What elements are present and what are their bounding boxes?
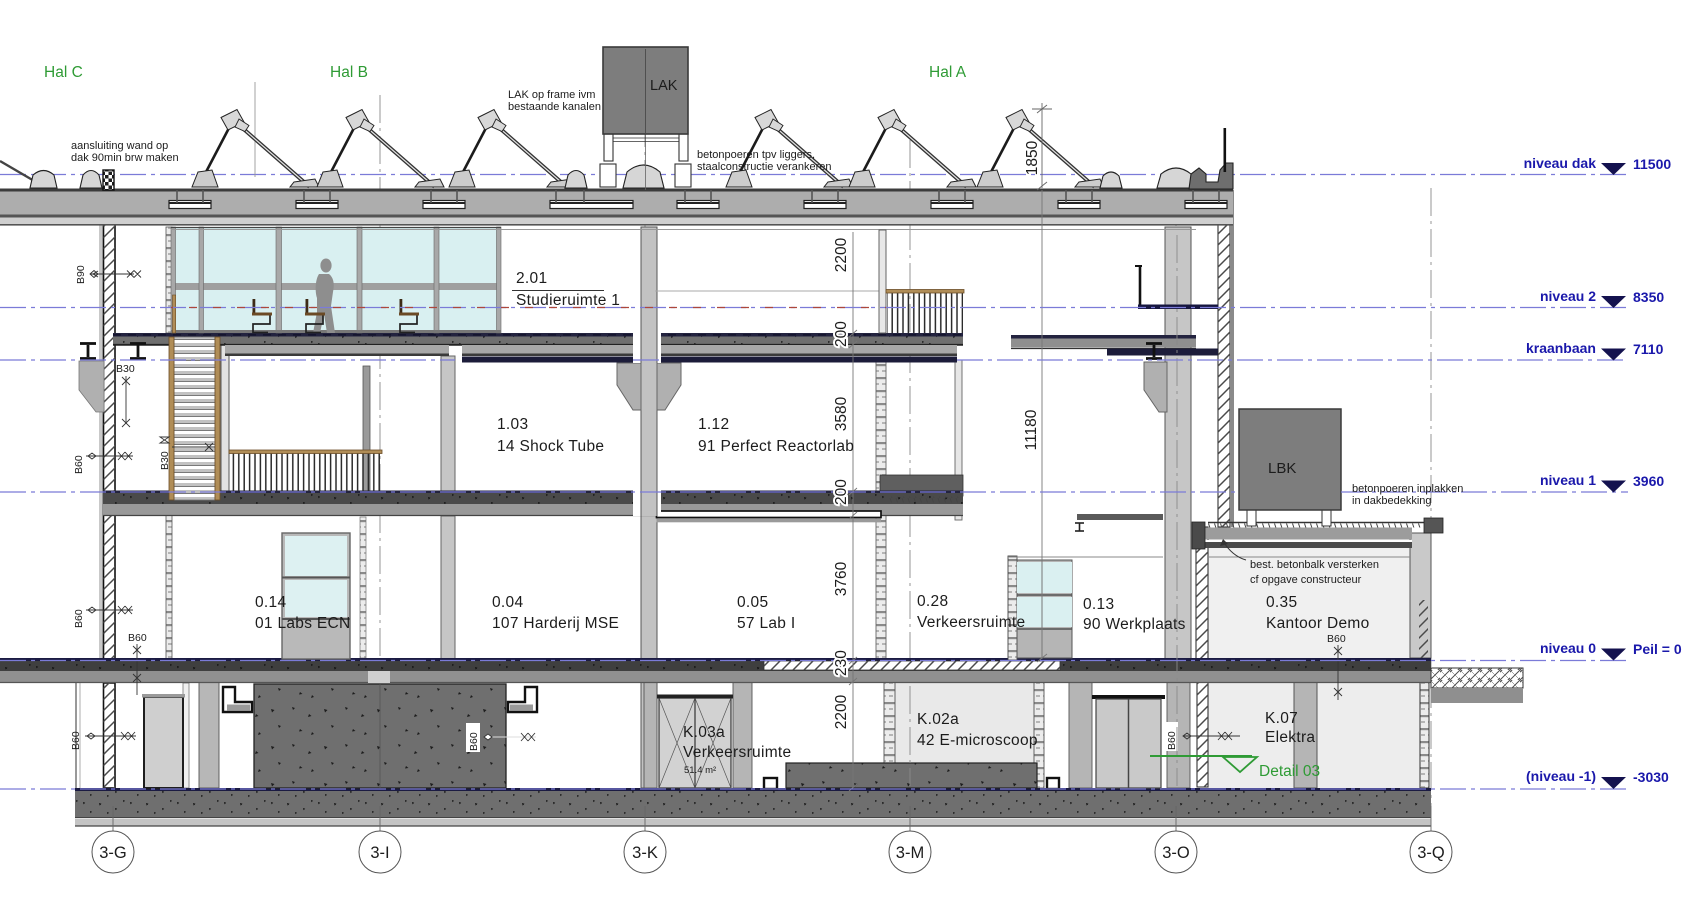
svg-text:0.13: 0.13 [1083,596,1114,613]
svg-text:B90: B90 [75,265,87,284]
svg-text:90 Werkplaats: 90 Werkplaats [1083,616,1186,633]
svg-text:Verkeersruimte: Verkeersruimte [683,744,791,761]
svg-text:51.4 m²: 51.4 m² [684,765,716,776]
svg-text:LAK: LAK [650,78,678,94]
svg-text:in dakbedekking: in dakbedekking [1352,495,1432,507]
svg-text:0.04: 0.04 [492,594,523,611]
svg-text:cf opgave constructeur: cf opgave constructeur [1250,574,1362,586]
svg-text:3-M: 3-M [896,844,924,862]
svg-text:7110: 7110 [1633,341,1664,357]
svg-text:Kantoor Demo: Kantoor Demo [1266,615,1370,632]
svg-text:3-K: 3-K [632,844,658,862]
svg-text:B60: B60 [73,609,85,628]
svg-text:230: 230 [833,650,850,676]
svg-text:Hal C: Hal C [44,64,83,81]
svg-text:01 Labs ECN: 01 Labs ECN [255,615,351,632]
svg-text:kraanbaan: kraanbaan [1526,340,1596,356]
svg-text:1850: 1850 [1024,140,1041,175]
svg-text:-3030: -3030 [1633,769,1669,785]
svg-text:3760: 3760 [833,561,850,596]
svg-text:11180: 11180 [1023,409,1040,450]
svg-text:B60: B60 [1327,633,1346,645]
svg-text:1.03: 1.03 [497,416,528,433]
svg-text:K.07: K.07 [1265,710,1298,727]
svg-text:3-O: 3-O [1162,844,1190,862]
svg-text:0.14: 0.14 [255,594,286,611]
svg-text:niveau 1: niveau 1 [1540,472,1596,488]
svg-text:Hal A: Hal A [929,64,967,81]
svg-text:staalconstructie verankeren: staalconstructie verankeren [697,161,832,173]
svg-text:1.12: 1.12 [698,416,729,433]
svg-text:57 Lab I: 57 Lab I [737,615,795,632]
svg-text:Hal B: Hal B [330,64,368,81]
svg-text:3580: 3580 [833,396,850,431]
svg-text:3-Q: 3-Q [1417,844,1445,862]
svg-text:B30: B30 [116,363,135,375]
svg-text:bestaande kanalen: bestaande kanalen [508,101,601,113]
svg-text:2.01: 2.01 [516,270,547,287]
svg-text:14 Shock Tube: 14 Shock Tube [497,438,604,455]
svg-text:betonpoeren inplakken: betonpoeren inplakken [1352,483,1463,495]
svg-text:niveau 2: niveau 2 [1540,288,1596,304]
svg-text:107 Harderij MSE: 107 Harderij MSE [492,615,619,632]
svg-text:11500: 11500 [1633,156,1671,172]
svg-text:0.28: 0.28 [917,593,948,610]
svg-text:2200: 2200 [833,237,850,272]
svg-text:Studieruimte 1: Studieruimte 1 [516,292,620,309]
svg-text:200: 200 [833,321,850,347]
svg-text:3960: 3960 [1633,473,1664,489]
svg-text:0.35: 0.35 [1266,594,1297,611]
svg-text:B60: B60 [73,455,85,474]
svg-text:aansluiting wand op: aansluiting wand op [71,140,168,152]
svg-text:Elektra: Elektra [1265,729,1315,746]
svg-text:8350: 8350 [1633,289,1664,305]
svg-text:dak 90min brw maken: dak 90min brw maken [71,152,179,164]
svg-text:B30: B30 [159,451,171,470]
svg-text:91 Perfect Reactorlab: 91 Perfect Reactorlab [698,438,854,455]
svg-text:B60: B60 [70,731,82,750]
svg-text:Peil = 0: Peil = 0 [1633,641,1682,657]
svg-text:K.03a: K.03a [683,724,725,741]
svg-text:LBK: LBK [1268,460,1296,477]
svg-text:betonpoeren tpv liggers,: betonpoeren tpv liggers, [697,149,815,161]
svg-text:0.05: 0.05 [737,594,768,611]
svg-text:(niveau -1): (niveau -1) [1526,768,1596,784]
svg-text:best. betonbalk versterken: best. betonbalk versterken [1250,559,1379,571]
svg-text:LAK op frame ivm: LAK op frame ivm [508,89,595,101]
svg-text:42 E-microscoop: 42 E-microscoop [917,732,1038,749]
svg-text:B60: B60 [1166,731,1178,750]
svg-text:B60: B60 [468,732,480,751]
svg-text:K.02a: K.02a [917,711,959,728]
svg-text:niveau dak: niveau dak [1524,155,1597,171]
svg-text:3-G: 3-G [99,844,127,862]
svg-text:3-I: 3-I [370,844,389,862]
svg-text:200: 200 [833,479,850,505]
svg-text:niveau 0: niveau 0 [1540,640,1596,656]
svg-text:B60: B60 [128,632,147,644]
svg-text:2200: 2200 [833,694,850,729]
svg-text:Verkeersruimte: Verkeersruimte [917,614,1025,631]
svg-text:Detail 03: Detail 03 [1259,763,1320,780]
